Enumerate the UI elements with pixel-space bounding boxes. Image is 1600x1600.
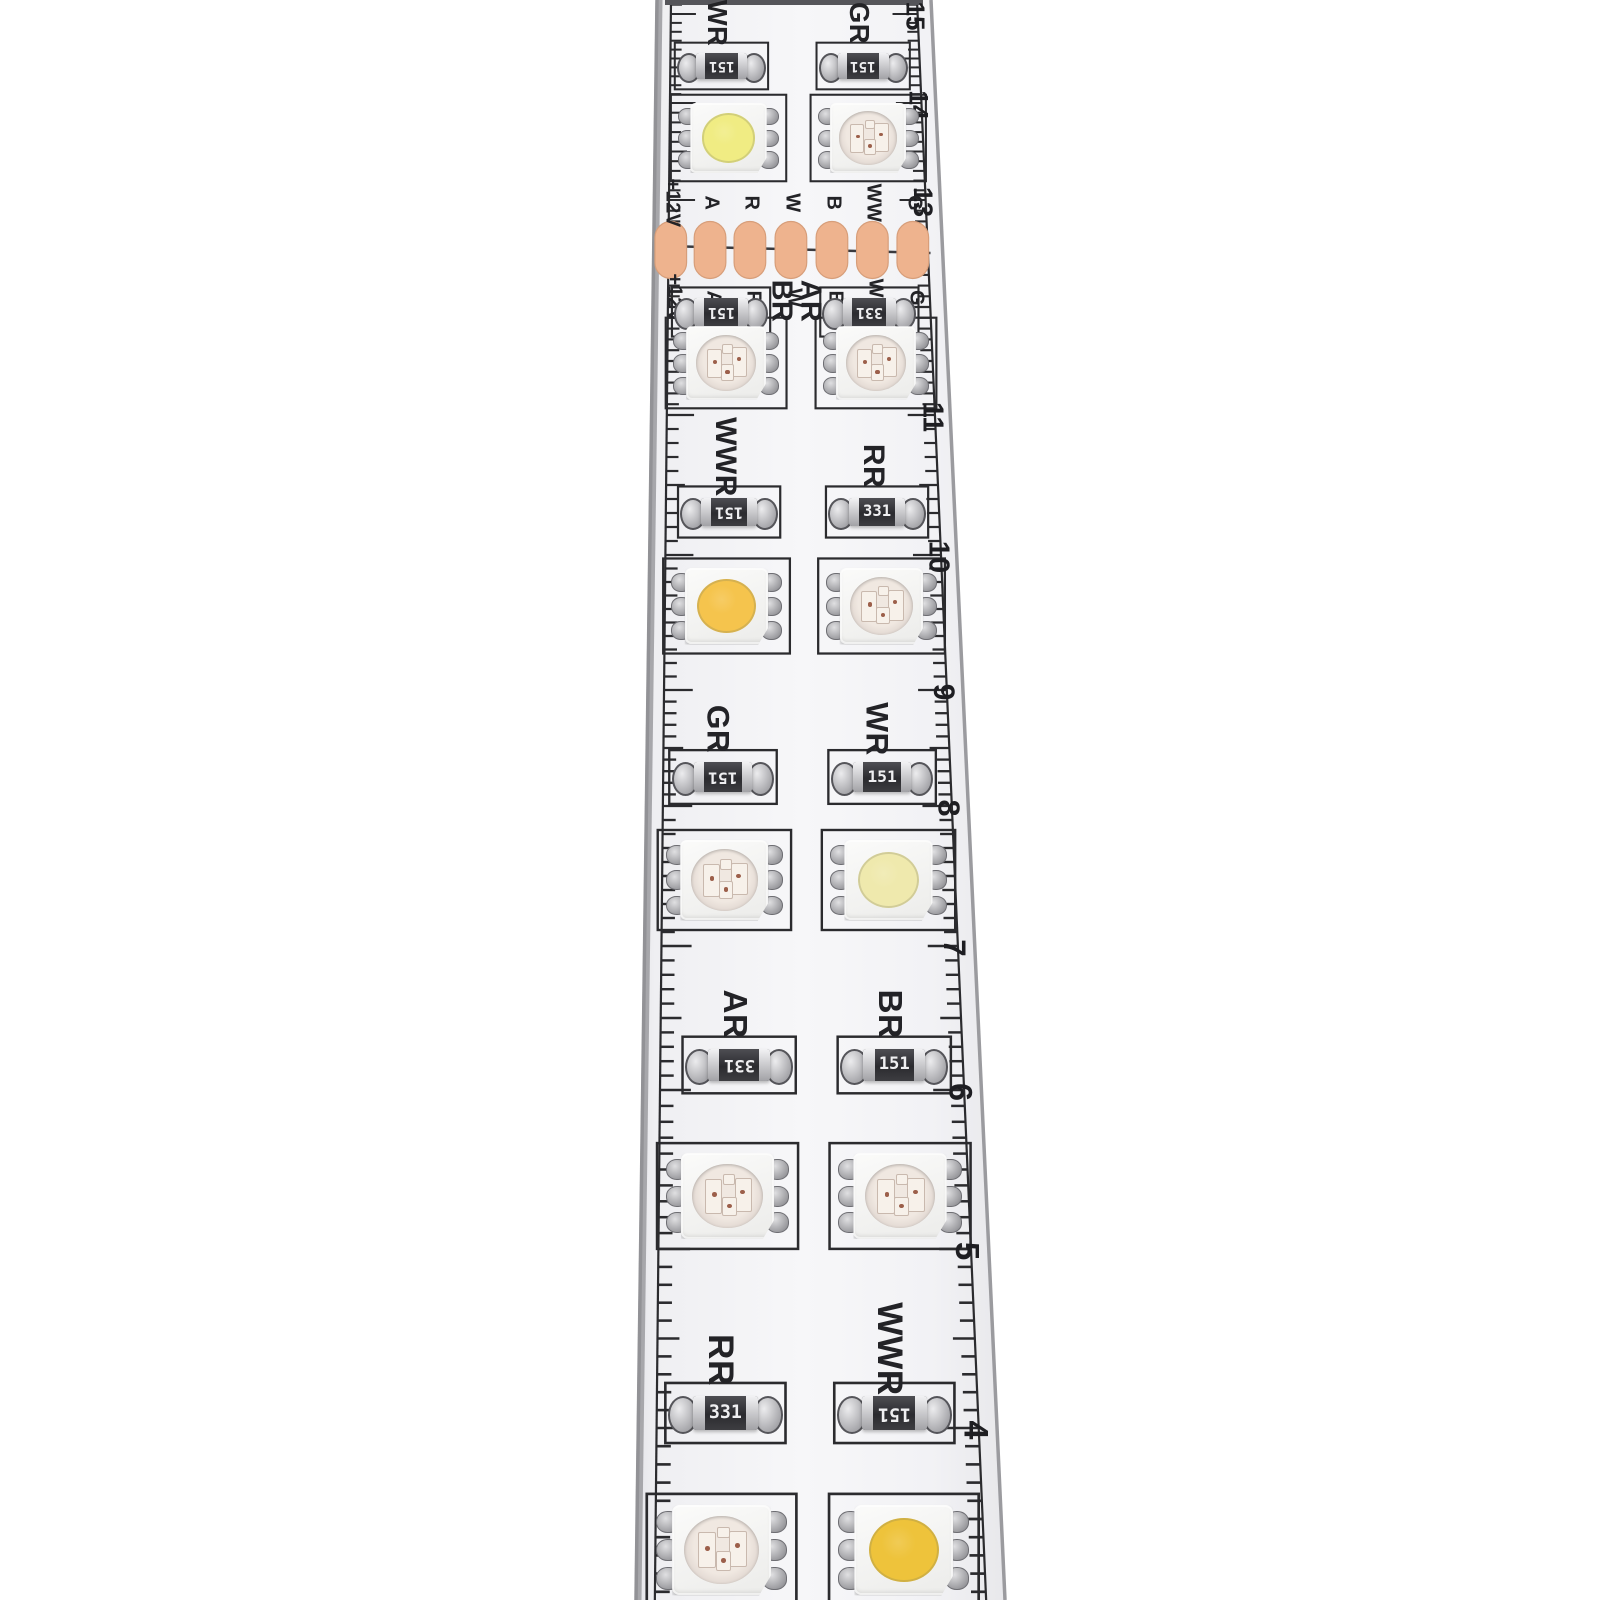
resistor-code: 151 (715, 504, 743, 520)
led-die (735, 1178, 753, 1212)
bond-dot (713, 360, 717, 364)
resistor-end-cap (694, 298, 704, 326)
resistor-code: 151 (878, 1404, 911, 1422)
led-package (853, 1153, 946, 1239)
silk-label-br: BR (764, 280, 797, 323)
bond-dot (740, 1190, 745, 1195)
resistor-body: 151 (862, 1396, 927, 1430)
resistor-end-cap (915, 1396, 927, 1430)
pad-label-top: W (780, 193, 803, 212)
resistor-end-cap (853, 762, 864, 792)
led-lens-clear (691, 849, 758, 910)
resistor-body: 151 (863, 1049, 925, 1081)
ruler-number: 9 (926, 684, 960, 701)
led-package (681, 1153, 774, 1239)
led-die (888, 590, 904, 621)
bond-dot (885, 1192, 890, 1197)
led-die (896, 1174, 908, 1185)
led-die (722, 344, 732, 354)
resistor-rr: 331 (830, 493, 923, 531)
led-rgb (840, 568, 924, 645)
led-lens-clear (850, 577, 913, 635)
pad-label-top: +12V (660, 178, 683, 227)
bond-dot (705, 1546, 710, 1551)
resistor-end-cap (838, 53, 847, 79)
led-white (690, 103, 766, 173)
led-die (720, 859, 731, 870)
resistor-ar: 331 (687, 1044, 790, 1086)
silk-label-wr: WR (701, 0, 733, 47)
led-rgb (853, 1153, 946, 1239)
silk-label-wwr: WWR (869, 1302, 909, 1396)
led-package (830, 103, 906, 173)
bond-dot (721, 1558, 726, 1563)
resistor-code: 151 (709, 59, 735, 73)
led-lens-clear (839, 111, 897, 164)
led-lens-clear (696, 335, 756, 391)
resistor-end-cap (738, 298, 748, 326)
resistor-body: 331 (693, 1396, 758, 1430)
resistor-gr: 151 (674, 757, 772, 797)
led-package (690, 103, 766, 173)
pad-label-top: G (902, 195, 925, 211)
led-package (840, 568, 924, 645)
silk-label-ar: AR (715, 990, 753, 1039)
resistor-end-cap (863, 1049, 874, 1081)
resistor-body: 151 (696, 53, 747, 79)
resistor-end-cap (886, 298, 896, 326)
led-white (685, 568, 769, 645)
led-package (836, 326, 916, 399)
resistor-code: 331 (724, 1056, 755, 1073)
led-die (878, 586, 889, 596)
pad-label-top: WW (862, 184, 885, 223)
led-white (844, 840, 932, 921)
led-die (872, 344, 882, 354)
led-lens-phosphor (697, 579, 756, 633)
silk-label-wwr: WWR (708, 417, 742, 497)
led-package (680, 840, 768, 921)
resistor-end-cap (879, 53, 888, 79)
ruler-number: 5 (948, 1242, 986, 1260)
ruler-number: 15 (899, 2, 930, 31)
led-die (723, 1174, 735, 1185)
silk-label-br: BR (870, 990, 908, 1039)
led-package (672, 1505, 771, 1596)
led-die (729, 1531, 747, 1567)
silk-label-gr: GR (700, 705, 737, 753)
silk-label-wr: WR (859, 702, 896, 756)
resistor-end-cap (759, 1049, 770, 1081)
silk-label-gr: GR (843, 2, 875, 44)
bond-dot (913, 1190, 918, 1195)
resistor-wwr: 151 (682, 493, 775, 531)
resistor-code: 151 (867, 769, 897, 785)
resistor-body: 331 (708, 1049, 770, 1081)
led-die (731, 863, 748, 896)
led-rgb (836, 326, 916, 399)
resistor-end-cap (843, 298, 853, 326)
resistor-end-cap (693, 1396, 705, 1430)
led-rgb (686, 326, 766, 399)
resistor-end-cap (849, 498, 859, 527)
resistor-br: 151 (843, 1044, 946, 1086)
bond-dot (875, 370, 879, 374)
led-lens-phosphor (858, 852, 920, 909)
ruler-number: 7 (936, 939, 972, 956)
led-die (732, 347, 747, 377)
led-package (686, 326, 766, 399)
silk-label-rr: RR (856, 444, 890, 488)
resistor-br: 151 (676, 294, 766, 330)
pad-label-top: R (739, 196, 762, 211)
resistor-wr: 151 (679, 49, 764, 83)
ruler-number: 6 (942, 1083, 979, 1101)
led-rgb (830, 103, 906, 173)
led-rgb (680, 840, 768, 921)
led-rgb (672, 1505, 771, 1596)
resistor-code: 151 (708, 305, 735, 320)
resistor-end-cap (746, 1396, 758, 1430)
resistor-end-cap (895, 498, 905, 527)
bond-dot (727, 1204, 732, 1209)
silk-label-ar: AR (793, 280, 826, 323)
resistor-end-cap (694, 762, 705, 792)
resistor-end-cap (742, 762, 753, 792)
ruler-number: 8 (931, 800, 966, 817)
resistor-rr: 331 (671, 1391, 781, 1435)
resistor-body: 151 (838, 53, 889, 79)
bond-dot (879, 133, 883, 137)
led-package (844, 840, 932, 921)
resistor-code: 331 (709, 1404, 742, 1422)
led-die (882, 347, 897, 377)
bond-dot (868, 144, 872, 148)
led-strip-components: 1514131110987654+12V+12VAARRWWBBWWWWGG15… (0, 0, 1600, 1600)
bond-dot (724, 887, 729, 891)
resistor-body: 151 (701, 498, 757, 527)
ruler-number: 4 (955, 1421, 994, 1440)
led-rgb (681, 1153, 774, 1239)
ruler-number: 11 (915, 402, 948, 432)
resistor-code: 151 (850, 59, 876, 73)
led-die (717, 1527, 729, 1539)
resistor-code: 151 (708, 769, 738, 785)
pad-label-top: A (700, 196, 723, 211)
resistor-code: 331 (856, 305, 883, 320)
led-lens-phosphor (702, 113, 756, 162)
led-lens-clear (684, 1516, 759, 1585)
led-lens-clear (846, 335, 906, 391)
resistor-end-cap (901, 762, 912, 792)
led-strip-photo: 1514131110987654+12V+12VAARRWWBBWWWWGG15… (0, 0, 1600, 1600)
resistor-wwr: 151 (839, 1391, 949, 1435)
led-package (854, 1505, 953, 1596)
resistor-body: 331 (843, 298, 896, 326)
resistor-end-cap (708, 1049, 719, 1081)
resistor-end-cap (701, 498, 711, 527)
resistor-body: 151 (694, 298, 747, 326)
resistor-end-cap (738, 53, 747, 79)
silk-label-rr: RR (700, 1334, 740, 1386)
resistor-body: 331 (849, 498, 905, 527)
resistor-gr: 151 (821, 49, 906, 83)
pad-label-top: B (821, 196, 844, 211)
led-die (874, 123, 889, 152)
led-die (850, 124, 865, 153)
bond-dot (710, 876, 715, 880)
resistor-end-cap (696, 53, 705, 79)
led-white (854, 1505, 953, 1596)
ruler-number: 10 (921, 541, 954, 573)
resistor-end-cap (747, 498, 757, 527)
led-lens-clear (692, 1164, 763, 1229)
led-package (685, 568, 769, 645)
resistor-end-cap (914, 1049, 925, 1081)
resistor-wr: 151 (833, 757, 931, 797)
resistor-ar: 331 (825, 294, 915, 330)
resistor-code: 331 (863, 504, 891, 520)
bond-dot (868, 602, 872, 606)
bond-dot (712, 1192, 717, 1197)
bond-dot (725, 370, 729, 374)
led-lens-phosphor (869, 1518, 938, 1582)
led-die (865, 120, 875, 129)
resistor-code: 151 (879, 1056, 910, 1073)
resistor-body: 151 (853, 762, 911, 792)
resistor-body: 151 (694, 762, 752, 792)
led-lens-clear (865, 1164, 936, 1229)
resistor-end-cap (862, 1396, 874, 1430)
bond-dot (863, 360, 867, 364)
led-die (907, 1178, 925, 1212)
